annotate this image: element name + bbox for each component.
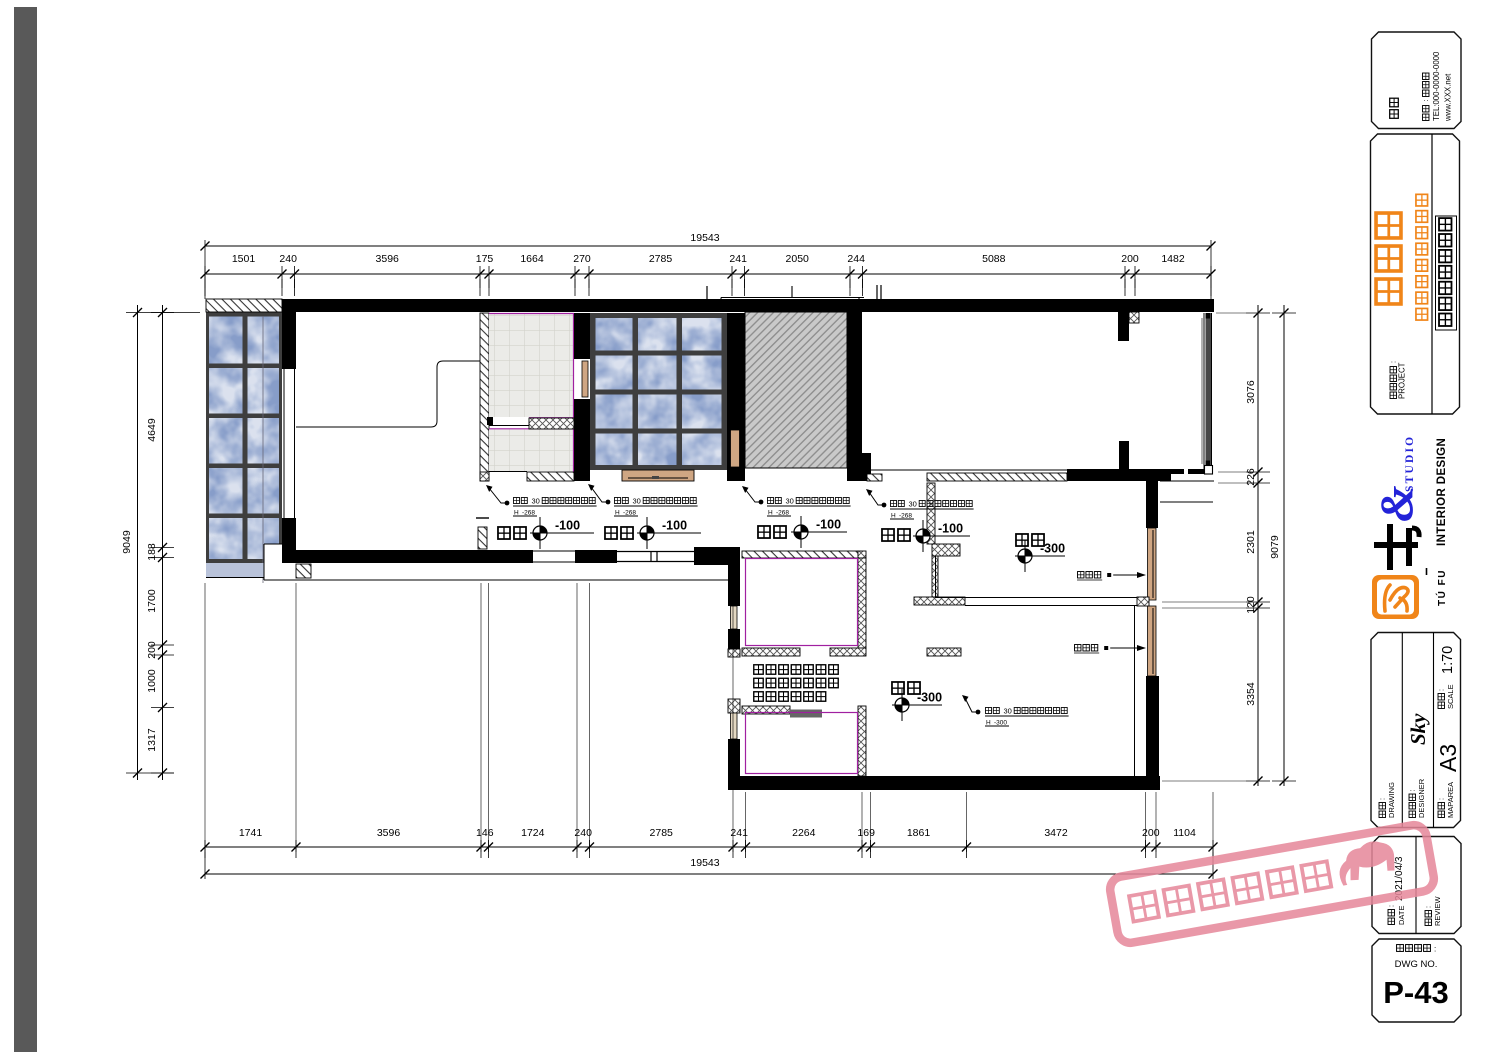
svg-text:1700: 1700 (146, 589, 158, 613)
svg-text:2785: 2785 (649, 253, 673, 265)
svg-text:1861: 1861 (907, 827, 931, 839)
svg-text:TÚ FU: TÚ FU (1435, 569, 1448, 606)
svg-text:3596: 3596 (376, 253, 400, 265)
svg-text:-300: -300 (994, 720, 1007, 727)
svg-text:REVIEW: REVIEW (1433, 895, 1442, 926)
svg-text:www.XXX.net: www.XXX.net (1444, 73, 1453, 122)
svg-text:3472: 3472 (1044, 827, 1068, 839)
svg-text:1:70: 1:70 (1440, 646, 1456, 674)
svg-text:DESIGNER: DESIGNER (1417, 778, 1426, 818)
svg-text:226: 226 (1245, 468, 1257, 486)
svg-text:244: 244 (847, 253, 865, 265)
svg-text:2301: 2301 (1245, 530, 1257, 554)
svg-text:188: 188 (146, 543, 158, 561)
svg-text:-100: -100 (938, 522, 963, 536)
svg-text:30: 30 (633, 497, 641, 506)
svg-text:A3: A3 (1435, 744, 1461, 772)
svg-text:30: 30 (532, 497, 540, 506)
svg-text:1317: 1317 (146, 728, 158, 752)
svg-text:STUDIO: STUDIO (1404, 435, 1416, 492)
svg-text:2785: 2785 (650, 827, 674, 839)
svg-text:1000: 1000 (146, 669, 158, 693)
svg-text:PROJECT: PROJECT (1398, 362, 1407, 399)
svg-text:-268: -268 (776, 510, 789, 517)
svg-text::: : (1424, 906, 1433, 908)
svg-text:146: 146 (476, 827, 494, 839)
svg-text::: : (1437, 798, 1446, 800)
svg-text:241: 241 (729, 253, 747, 265)
svg-text:30: 30 (786, 497, 794, 506)
svg-text:175: 175 (476, 253, 494, 265)
svg-text::: : (1389, 361, 1398, 363)
svg-text::: : (1387, 905, 1396, 907)
svg-text:19543: 19543 (690, 232, 719, 244)
svg-text:30: 30 (1004, 707, 1012, 716)
svg-text:9049: 9049 (121, 530, 133, 554)
svg-text:-268: -268 (899, 513, 912, 520)
svg-text:Sky: Sky (1406, 713, 1430, 745)
svg-text:120: 120 (1245, 596, 1257, 614)
svg-text:4649: 4649 (146, 418, 158, 442)
svg-text:TEL:000-0000-0000: TEL:000-0000-0000 (1432, 51, 1441, 121)
svg-text:H: H (891, 513, 896, 520)
svg-text:-300: -300 (917, 691, 942, 705)
svg-text:H: H (514, 510, 519, 517)
svg-text:3354: 3354 (1245, 682, 1257, 706)
svg-text:H: H (768, 510, 773, 517)
svg-text:H: H (615, 510, 620, 517)
svg-text:200: 200 (146, 641, 158, 659)
svg-text:-100: -100 (816, 518, 841, 532)
svg-text::: : (1434, 945, 1436, 954)
svg-text:3596: 3596 (377, 827, 401, 839)
svg-text:-300: -300 (1040, 542, 1065, 556)
svg-text:1664: 1664 (520, 253, 544, 265)
svg-text:H: H (986, 720, 991, 727)
svg-text:INTERIOR DESIGN: INTERIOR DESIGN (1436, 438, 1448, 546)
svg-text:P-43: P-43 (1383, 975, 1448, 1010)
svg-text::: : (1378, 798, 1387, 800)
svg-text:30: 30 (909, 500, 917, 509)
svg-text:MAPAREA: MAPAREA (1446, 782, 1455, 818)
svg-text:169: 169 (857, 827, 875, 839)
svg-text:9079: 9079 (1269, 535, 1281, 559)
svg-text::: : (1421, 99, 1430, 101)
svg-text:240: 240 (279, 253, 297, 265)
svg-text:1482: 1482 (1161, 253, 1185, 265)
svg-text:270: 270 (573, 253, 591, 265)
svg-text:2264: 2264 (792, 827, 816, 839)
svg-text:SCALE: SCALE (1446, 684, 1455, 709)
svg-text:-268: -268 (522, 510, 535, 517)
svg-text:DWG NO.: DWG NO. (1395, 959, 1438, 970)
svg-text:19543: 19543 (690, 857, 719, 869)
svg-text:200: 200 (1142, 827, 1160, 839)
svg-text:-100: -100 (662, 519, 687, 533)
svg-text:2050: 2050 (786, 253, 810, 265)
svg-text::: : (1408, 789, 1417, 791)
svg-text:5088: 5088 (982, 253, 1006, 265)
svg-text:DRAWING: DRAWING (1387, 782, 1396, 818)
svg-text:3076: 3076 (1245, 380, 1257, 404)
svg-text:200: 200 (1121, 253, 1139, 265)
svg-text::: : (1437, 689, 1446, 691)
svg-text:1724: 1724 (521, 827, 545, 839)
svg-text:1104: 1104 (1173, 827, 1196, 839)
svg-text:DATE: DATE (1397, 906, 1406, 925)
svg-text:1501: 1501 (232, 253, 256, 265)
svg-text:-268: -268 (623, 510, 636, 517)
svg-text:1741: 1741 (239, 827, 263, 839)
svg-text:-100: -100 (555, 519, 580, 533)
